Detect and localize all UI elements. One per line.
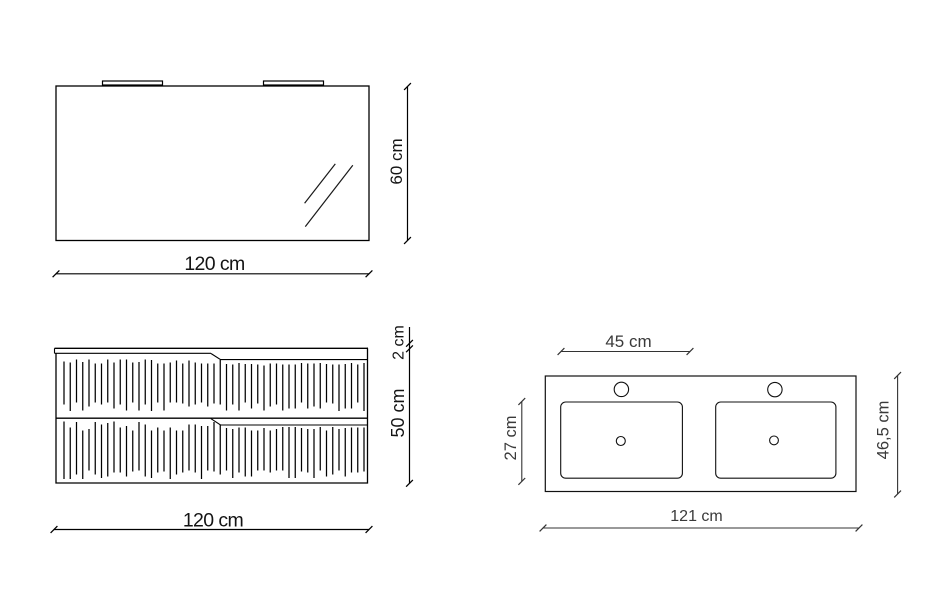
svg-text:120 cm: 120 cm	[184, 253, 244, 275]
svg-text:45 cm: 45 cm	[605, 332, 651, 351]
svg-text:27 cm: 27 cm	[502, 416, 520, 461]
svg-text:60 cm: 60 cm	[387, 138, 406, 184]
svg-text:121 cm: 121 cm	[670, 508, 722, 525]
svg-text:46,5 cm: 46,5 cm	[874, 401, 892, 460]
svg-text:50 cm: 50 cm	[388, 388, 408, 437]
svg-text:2 cm: 2 cm	[391, 325, 408, 360]
svg-text:120 cm: 120 cm	[183, 509, 243, 531]
